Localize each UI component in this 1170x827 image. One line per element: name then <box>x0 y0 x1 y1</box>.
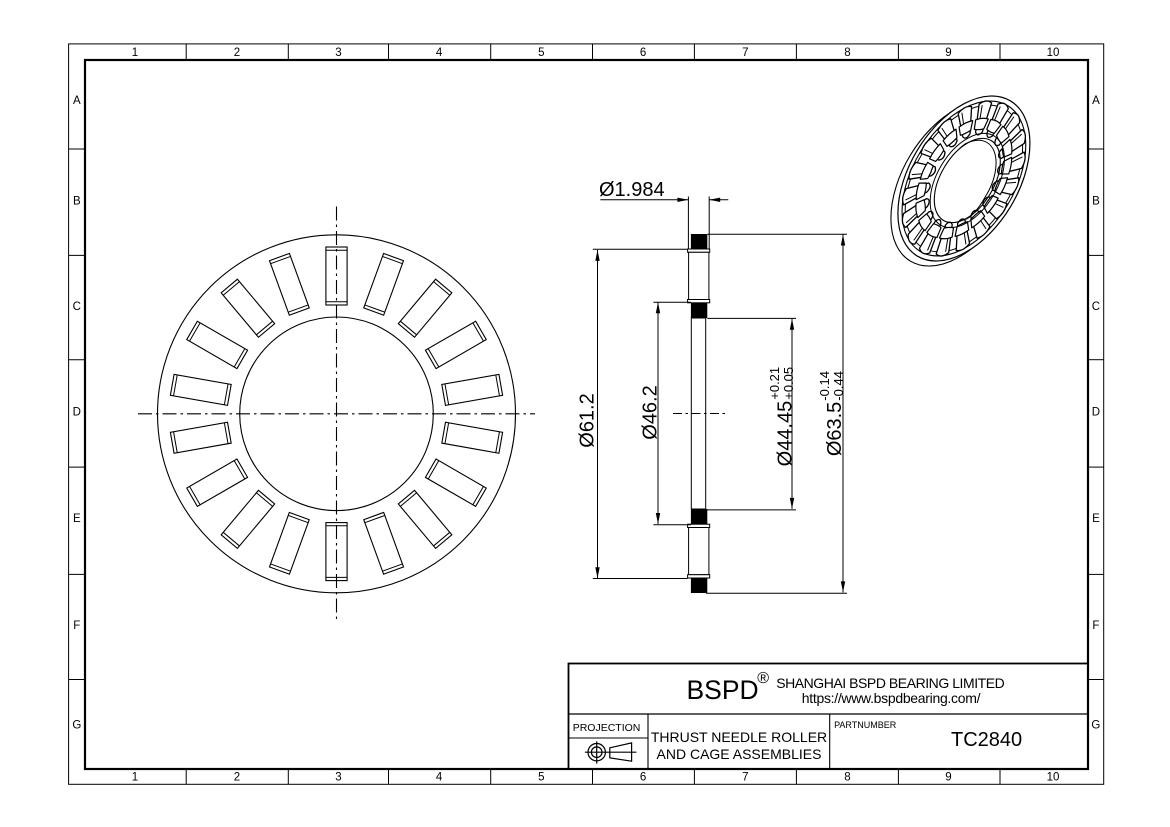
svg-text:A: A <box>73 95 81 107</box>
svg-text:G: G <box>1091 720 1100 732</box>
svg-text:B: B <box>73 196 81 208</box>
svg-text:8: 8 <box>844 772 850 784</box>
svg-text:C: C <box>1092 301 1100 313</box>
svg-text:E: E <box>73 513 81 525</box>
svg-text:D: D <box>1092 407 1100 419</box>
svg-text:10: 10 <box>1047 772 1060 784</box>
svg-text:5: 5 <box>538 772 544 784</box>
svg-text:1: 1 <box>132 47 138 59</box>
svg-text:4: 4 <box>436 47 443 59</box>
svg-text:5: 5 <box>538 47 544 59</box>
svg-text:3: 3 <box>335 772 341 784</box>
svg-text:2: 2 <box>234 47 240 59</box>
svg-text:10: 10 <box>1047 47 1060 59</box>
svg-text:8: 8 <box>844 47 850 59</box>
svg-text:7: 7 <box>742 47 748 59</box>
svg-text:1: 1 <box>132 772 138 784</box>
svg-text:E: E <box>1092 513 1100 525</box>
svg-text:C: C <box>73 301 81 313</box>
svg-text:7: 7 <box>742 772 748 784</box>
svg-text:F: F <box>1092 620 1099 632</box>
svg-text:6: 6 <box>640 47 646 59</box>
svg-text:4: 4 <box>436 772 443 784</box>
svg-text:2: 2 <box>234 772 240 784</box>
svg-text:9: 9 <box>945 772 951 784</box>
svg-text:3: 3 <box>335 47 341 59</box>
svg-text:A: A <box>1092 95 1100 107</box>
svg-text:B: B <box>1092 196 1100 208</box>
svg-text:6: 6 <box>640 772 646 784</box>
svg-text:G: G <box>72 720 81 732</box>
svg-text:9: 9 <box>945 47 951 59</box>
svg-text:D: D <box>73 407 81 419</box>
svg-text:F: F <box>73 620 80 632</box>
